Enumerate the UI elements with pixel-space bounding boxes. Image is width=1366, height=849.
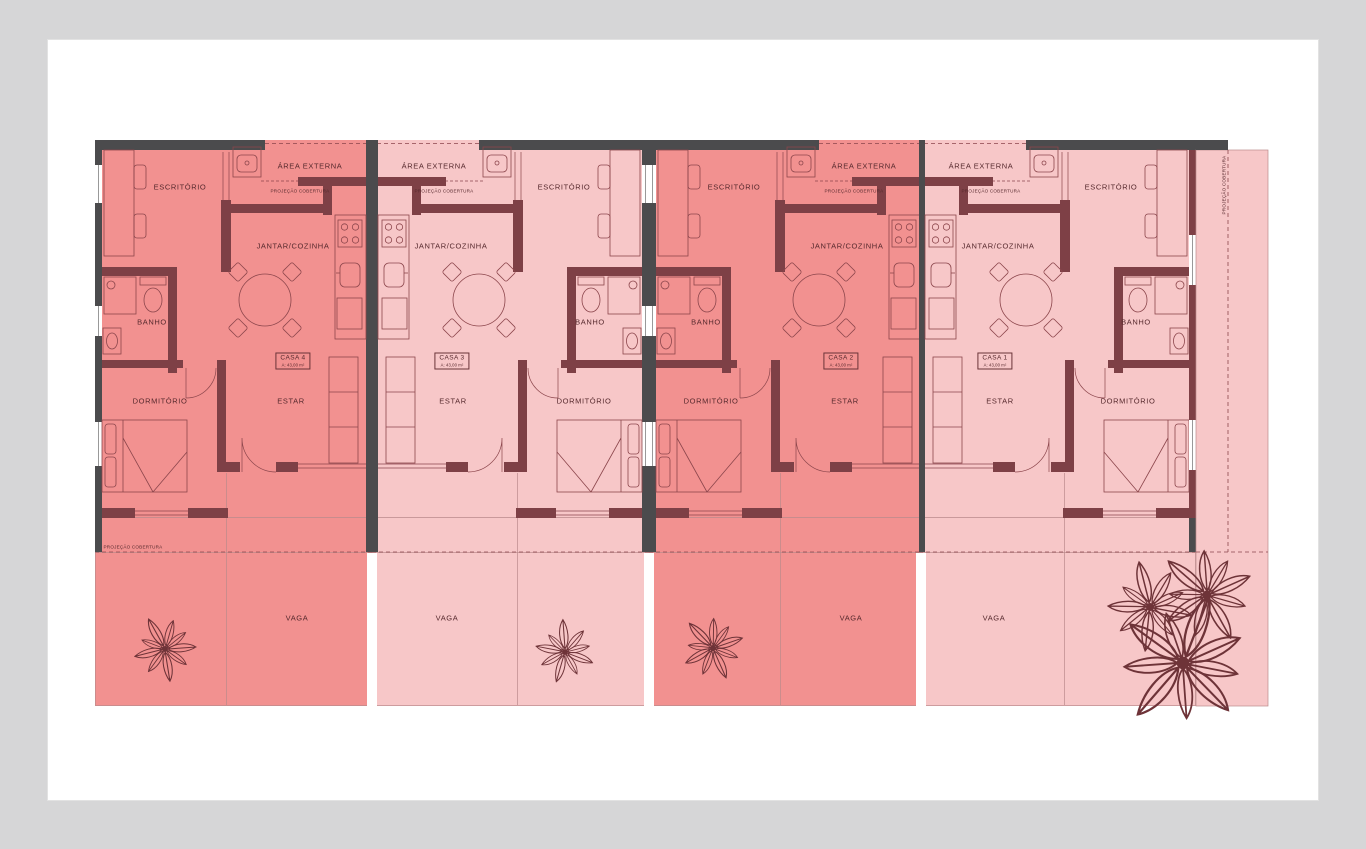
room-label-banho: BANHO (1121, 318, 1151, 327)
unit-area: A: 43,00 m² (439, 363, 464, 368)
parking-label-vaga: VAGA (436, 614, 459, 623)
unit-area: A: 43,00 m² (982, 363, 1007, 368)
unit-tag-casa-4: CASA 4 A: 43,00 m² (275, 353, 310, 370)
projecao-cobertura-label: PROJEÇÃO COBERTURA (104, 545, 163, 550)
parking-label-vaga: VAGA (983, 614, 1006, 623)
room-label-banho: BANHO (575, 318, 605, 327)
room-label-jantar-cozinha: JANTAR/COZINHA (962, 242, 1035, 251)
unit-tag-casa-2: CASA 2 A: 43,00 m² (823, 353, 858, 370)
room-label-jantar-cozinha: JANTAR/COZINHA (257, 242, 330, 251)
unit-casa-1 (919, 140, 1196, 706)
room-label-estar: ESTAR (277, 397, 304, 406)
room-label-escritorio: ESCRITÓRIO (1085, 183, 1138, 192)
room-label-banho: BANHO (691, 318, 721, 327)
projecao-cobertura-label: PROJEÇÃO COBERTURA (825, 189, 884, 194)
unit-tag-casa-3: CASA 3 A: 43,00 m² (434, 353, 469, 370)
projecao-cobertura-label-vertical: PROJEÇÃO COBERTURA (1222, 156, 1227, 215)
room-label-estar: ESTAR (986, 397, 1013, 406)
projecao-cobertura-label: PROJEÇÃO COBERTURA (415, 189, 474, 194)
projecao-cobertura-label: PROJEÇÃO COBERTURA (962, 189, 1021, 194)
room-label-area-externa: ÁREA EXTERNA (832, 162, 897, 171)
room-label-area-externa: ÁREA EXTERNA (278, 162, 343, 171)
room-label-jantar-cozinha: JANTAR/COZINHA (415, 242, 488, 251)
room-label-escritorio: ESCRITÓRIO (538, 183, 591, 192)
room-label-banho: BANHO (137, 318, 167, 327)
unit-name: CASA 3 (439, 355, 464, 362)
unit-casa-4 (95, 140, 372, 706)
casa-1-right-wall (1189, 150, 1196, 518)
room-label-area-externa: ÁREA EXTERNA (949, 162, 1014, 171)
unit-area: A: 43,00 m² (280, 363, 305, 368)
unit-casa-3 (372, 140, 649, 706)
room-label-dormitorio: DORMITÓRIO (133, 397, 188, 406)
unit-name: CASA 4 (280, 355, 305, 362)
room-label-dormitorio: DORMITÓRIO (684, 397, 739, 406)
room-label-estar: ESTAR (831, 397, 858, 406)
room-label-escritorio: ESCRITÓRIO (708, 183, 761, 192)
room-label-area-externa: ÁREA EXTERNA (402, 162, 467, 171)
unit-casa-2 (649, 140, 926, 706)
room-label-jantar-cozinha: JANTAR/COZINHA (811, 242, 884, 251)
unit-name: CASA 2 (828, 355, 853, 362)
projecao-cobertura-label: PROJEÇÃO COBERTURA (271, 189, 330, 194)
parking-label-vaga: VAGA (840, 614, 863, 623)
room-label-escritorio: ESCRITÓRIO (154, 183, 207, 192)
unit-tag-casa-1: CASA 1 A: 43,00 m² (977, 353, 1012, 370)
floor-plan-drawing (0, 0, 1366, 849)
parking-label-vaga: VAGA (286, 614, 309, 623)
unit-area: A: 43,00 m² (828, 363, 853, 368)
room-label-dormitorio: DORMITÓRIO (1101, 397, 1156, 406)
unit-name: CASA 1 (982, 355, 1007, 362)
room-label-estar: ESTAR (439, 397, 466, 406)
floor-plan-page: ESCRITÓRIO ÁREA EXTERNA PROJEÇÃO COBERTU… (0, 0, 1366, 849)
room-label-dormitorio: DORMITÓRIO (557, 397, 612, 406)
